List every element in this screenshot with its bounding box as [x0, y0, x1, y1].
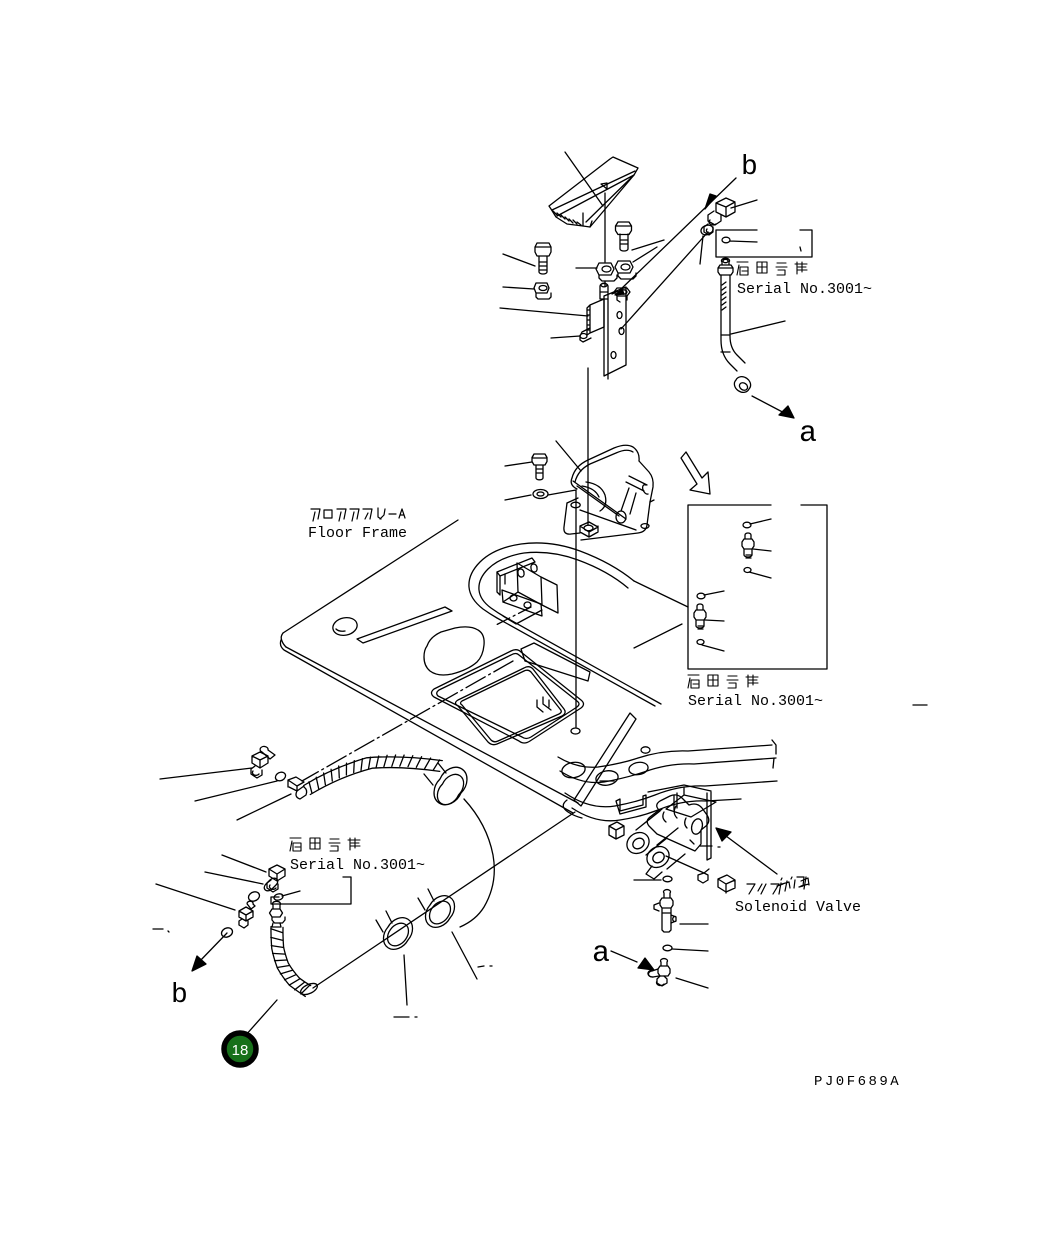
svg-text:Solenoid Valve: Solenoid Valve — [735, 899, 861, 916]
svg-text:Serial No.3001~: Serial No.3001~ — [737, 281, 872, 298]
svg-text:Serial No.3001~: Serial No.3001~ — [688, 693, 823, 710]
svg-text:18: 18 — [232, 1042, 249, 1059]
svg-text:Serial No.3001~: Serial No.3001~ — [290, 857, 425, 874]
svg-text:PJ0F689A: PJ0F689A — [814, 1074, 901, 1090]
svg-text:b: b — [741, 152, 758, 183]
svg-text:a: a — [592, 937, 610, 971]
svg-text:b: b — [171, 980, 188, 1011]
svg-text:a: a — [799, 417, 817, 451]
svg-text:Floor Frame: Floor Frame — [308, 525, 407, 542]
